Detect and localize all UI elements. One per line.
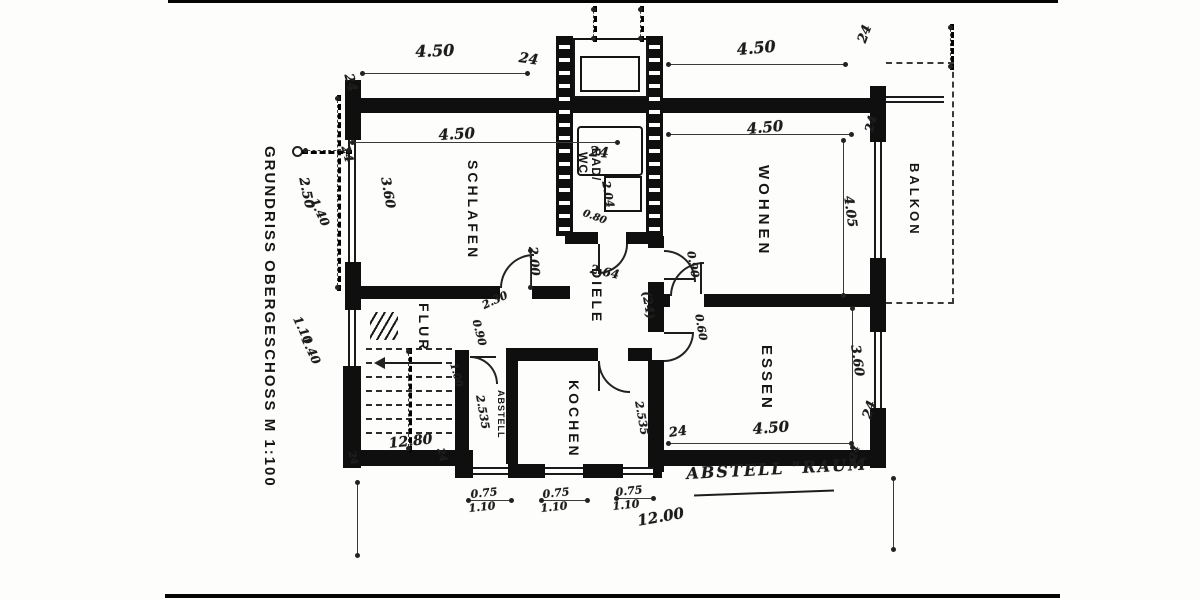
wall-bottom-mid-b xyxy=(508,464,545,478)
door-leaf-essen xyxy=(664,332,692,334)
window-essen-right xyxy=(874,332,882,408)
dim-label: 1.40 xyxy=(298,334,323,366)
dim-label: 2.00 xyxy=(526,246,542,276)
door-arc-kochen xyxy=(598,361,630,393)
dim-label: 4.50 xyxy=(746,117,784,138)
window-bottom-1 xyxy=(473,467,508,475)
wall-kochen-top-a xyxy=(506,348,598,361)
dim-label: 12.80 xyxy=(388,431,433,451)
dim-line xyxy=(668,443,852,444)
wall-kochen-top-b xyxy=(628,348,652,361)
dim-extension-line xyxy=(593,6,597,42)
dim-label: 4.05 xyxy=(840,195,859,228)
dim-label: 3.60 xyxy=(377,176,397,210)
dim-label: 24 xyxy=(341,72,360,93)
dim-line xyxy=(893,478,894,550)
wall-wohnen-essen-b xyxy=(704,294,884,307)
dim-label: 4.50 xyxy=(415,41,455,61)
door-leaf-kochen xyxy=(598,361,600,391)
stair-entry-hatch-icon xyxy=(370,312,398,340)
dim-label: 4.50 xyxy=(752,417,790,438)
wall-kochen-left xyxy=(506,361,518,464)
scan-border-top xyxy=(168,0,1058,3)
dim-label: 24 xyxy=(668,423,688,440)
dim-line xyxy=(852,308,853,448)
dim-label: 0.60 xyxy=(692,313,709,342)
wall-bad-bottom-b xyxy=(626,232,650,244)
dim-label: 1.40 xyxy=(307,196,332,228)
window-flur-left xyxy=(348,310,356,366)
dim-label: 12.00 xyxy=(636,504,685,530)
dim-line xyxy=(668,64,846,65)
dim-label: 4.50 xyxy=(736,37,776,59)
dim-extension-line xyxy=(950,24,954,70)
stair-arrow-line xyxy=(384,362,442,364)
wall-pillar-right-mid xyxy=(870,258,886,332)
window-wohnen-right xyxy=(874,142,882,258)
room-label-kochen: KOCHEN xyxy=(566,380,582,459)
wall-schlafen-bottom-a xyxy=(352,286,500,299)
balkon-railing xyxy=(886,96,944,103)
window-bottom-3 xyxy=(623,467,653,475)
dim-extension-line xyxy=(640,6,644,42)
wall-wohnen-essen-a xyxy=(660,294,670,307)
door-arc-abstell xyxy=(470,356,498,384)
wall-pillar-right-top xyxy=(870,86,886,142)
dim-label: 1.10 xyxy=(612,497,640,513)
room-label-schlafen: SCHLAFEN xyxy=(465,160,481,260)
room-label-abstell: ABSTELL xyxy=(496,390,506,439)
stair-arrow-head xyxy=(374,357,385,369)
wall-central-a xyxy=(648,236,664,248)
dim-extension-line xyxy=(337,95,341,291)
dim-label: 2.535 xyxy=(473,394,492,430)
door-leaf-wohnen-essen xyxy=(700,262,702,294)
window-bottom-2 xyxy=(545,467,583,475)
scan-border-bottom xyxy=(165,594,1060,598)
wall-top xyxy=(352,98,886,113)
room-label-balkon: BALKON xyxy=(907,163,922,237)
door-arc-essen xyxy=(664,332,694,362)
room-label-essen: ESSEN xyxy=(758,345,775,411)
dim-label: 24 xyxy=(518,50,540,69)
dim-line xyxy=(352,142,618,143)
wall-shaft-right xyxy=(646,36,663,236)
wall-schlafen-bottom-b xyxy=(532,286,570,299)
dim-label: 1.10 xyxy=(468,499,496,515)
dim-line xyxy=(357,482,358,556)
shaft-box xyxy=(580,56,640,92)
wall-bottom-mid-a xyxy=(455,464,473,478)
note-underline xyxy=(694,490,834,497)
wall-flur-bottom xyxy=(343,450,473,466)
wall-bad-bottom-a xyxy=(565,232,598,244)
dim-label: 4.50 xyxy=(438,124,475,144)
room-label-wohnen: WOHNEN xyxy=(755,165,772,257)
room-label-flur: FLUR xyxy=(416,303,432,352)
wall-bottom-mid-c xyxy=(583,464,623,478)
dim-label: 24 xyxy=(589,144,610,162)
dim-label: 0.90 xyxy=(469,318,488,347)
dim-label: 3.60 xyxy=(847,344,866,377)
scanned-floorplan-page: GRUNDRISS OBERGESCHOSS M 1:100 xyxy=(0,0,1200,600)
dim-line xyxy=(362,73,528,74)
dim-label: 24 xyxy=(855,23,875,45)
dim-label: 1.10 xyxy=(540,499,568,515)
wall-bottom-mid-d xyxy=(653,464,662,478)
door-leaf-abstell xyxy=(470,356,496,358)
room-label-wc: WC xyxy=(576,152,590,174)
wall-shaft-left xyxy=(556,36,573,236)
plan-title: GRUNDRISS OBERGESCHOSS M 1:100 xyxy=(261,146,278,488)
